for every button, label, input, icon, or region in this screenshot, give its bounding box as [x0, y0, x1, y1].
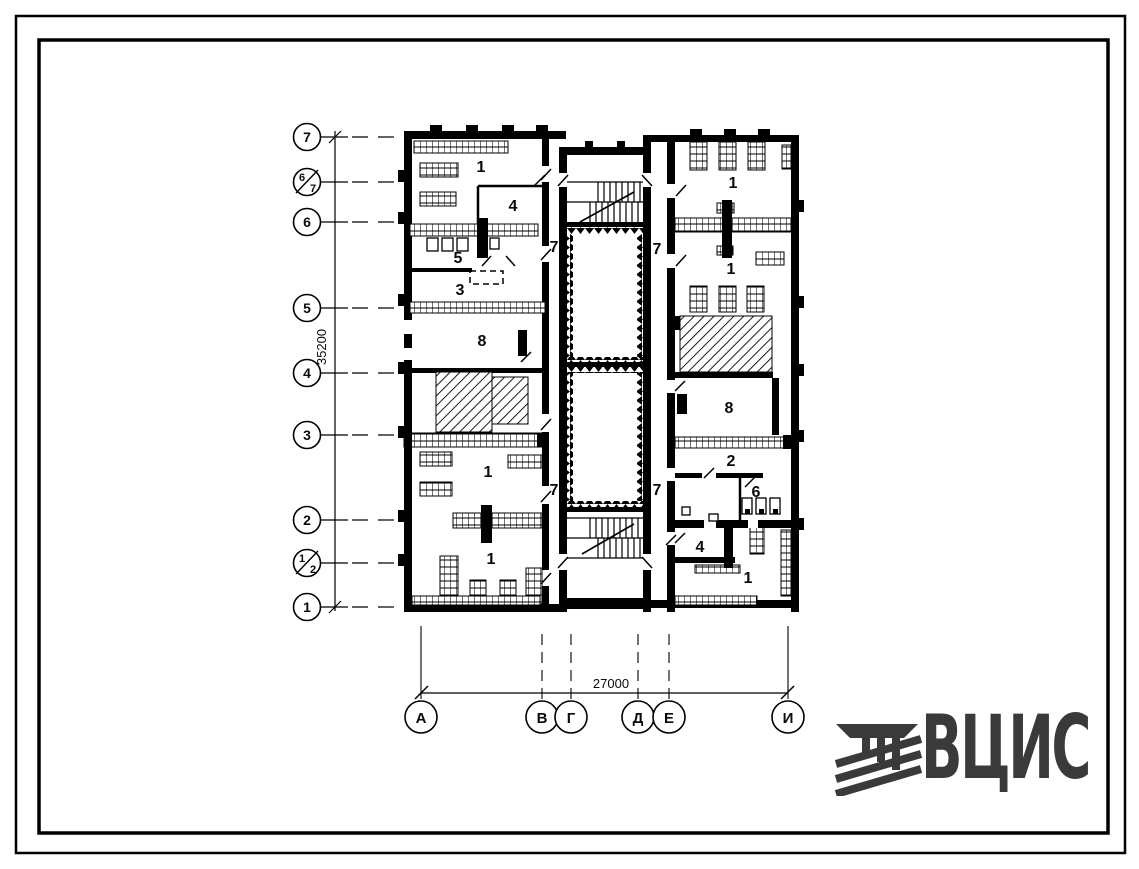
- room-label: 1: [484, 464, 493, 481]
- axis-bubble-6of7-top: 6: [299, 172, 305, 184]
- stairs-top: [567, 182, 643, 222]
- room-label: 8: [478, 333, 487, 350]
- room-label: 1: [744, 570, 753, 587]
- room-label: 6: [752, 484, 761, 501]
- axis-bubble-6of7-bottom: 7: [310, 183, 316, 195]
- axis-bubble-1: 1: [303, 599, 311, 615]
- axis-bubble-4: 4: [303, 365, 311, 381]
- drawing-sheet: 7 6 7 6 5 4 3 2 1 2 1 35200: [0, 0, 1139, 869]
- vertical-dimension: 35200: [314, 329, 329, 365]
- horizontal-dimension: 27000: [593, 676, 629, 691]
- axis-bubble-2: 2: [303, 512, 311, 528]
- sanitary-fixtures: [682, 498, 780, 521]
- axis-bubble-6: 6: [303, 214, 311, 230]
- corridor-label: 7: [550, 482, 559, 499]
- corridor-label: 7: [653, 482, 662, 499]
- left-wing: [404, 141, 551, 606]
- corridor-label: 7: [550, 239, 559, 256]
- sanitary-fixtures: [427, 238, 499, 251]
- room-label: 4: [696, 539, 705, 556]
- axis-bubble-1of2-bottom: 2: [310, 564, 316, 576]
- room-label: 4: [509, 198, 518, 215]
- bottom-axis: 27000 А В Г Д Е И: [405, 626, 804, 733]
- axis-bubble-I: И: [783, 710, 794, 727]
- axis-bubble-D: Д: [633, 710, 644, 727]
- dashed-equipment-outline: [470, 271, 503, 284]
- corridor-label: 7: [653, 241, 662, 258]
- room-label: 1: [487, 551, 496, 568]
- fixture-marks: [745, 509, 778, 514]
- room-label: 1: [729, 175, 738, 192]
- logo-text: ВЦИС: [921, 702, 1089, 788]
- logo-icon: [833, 716, 925, 796]
- axis-bubble-1of2-top: 1: [299, 553, 305, 565]
- stair-core: [558, 175, 652, 568]
- hatch-area-right: [680, 316, 772, 372]
- room-label: 3: [456, 282, 465, 299]
- right-wing: [666, 142, 791, 605]
- room-label: 8: [725, 400, 734, 417]
- axis-bubble-G: Г: [567, 710, 576, 727]
- room-label: 1: [727, 261, 736, 278]
- room-label: 1: [477, 159, 486, 176]
- stairs-bottom: [567, 518, 643, 558]
- left-axis: 7 6 7 6 5 4 3 2 1 2 1 35200: [294, 124, 397, 621]
- floor-plan: 1 4 5 3 8 1 1 7 7 7 7 1 1 8 2 6 4 1: [398, 125, 804, 612]
- axis-bubble-B: В: [537, 710, 548, 727]
- room-label: 5: [454, 250, 463, 267]
- axis-bubble-3: 3: [303, 427, 311, 443]
- axis-bubble-7: 7: [303, 129, 311, 145]
- axis-bubble-A: А: [416, 710, 427, 727]
- axis-bubble-E: Е: [664, 710, 674, 727]
- hatch-area-left: [436, 372, 528, 432]
- logo: ВЦИС: [833, 716, 1093, 802]
- room-label: 2: [727, 453, 736, 470]
- axis-bubble-5: 5: [303, 300, 311, 316]
